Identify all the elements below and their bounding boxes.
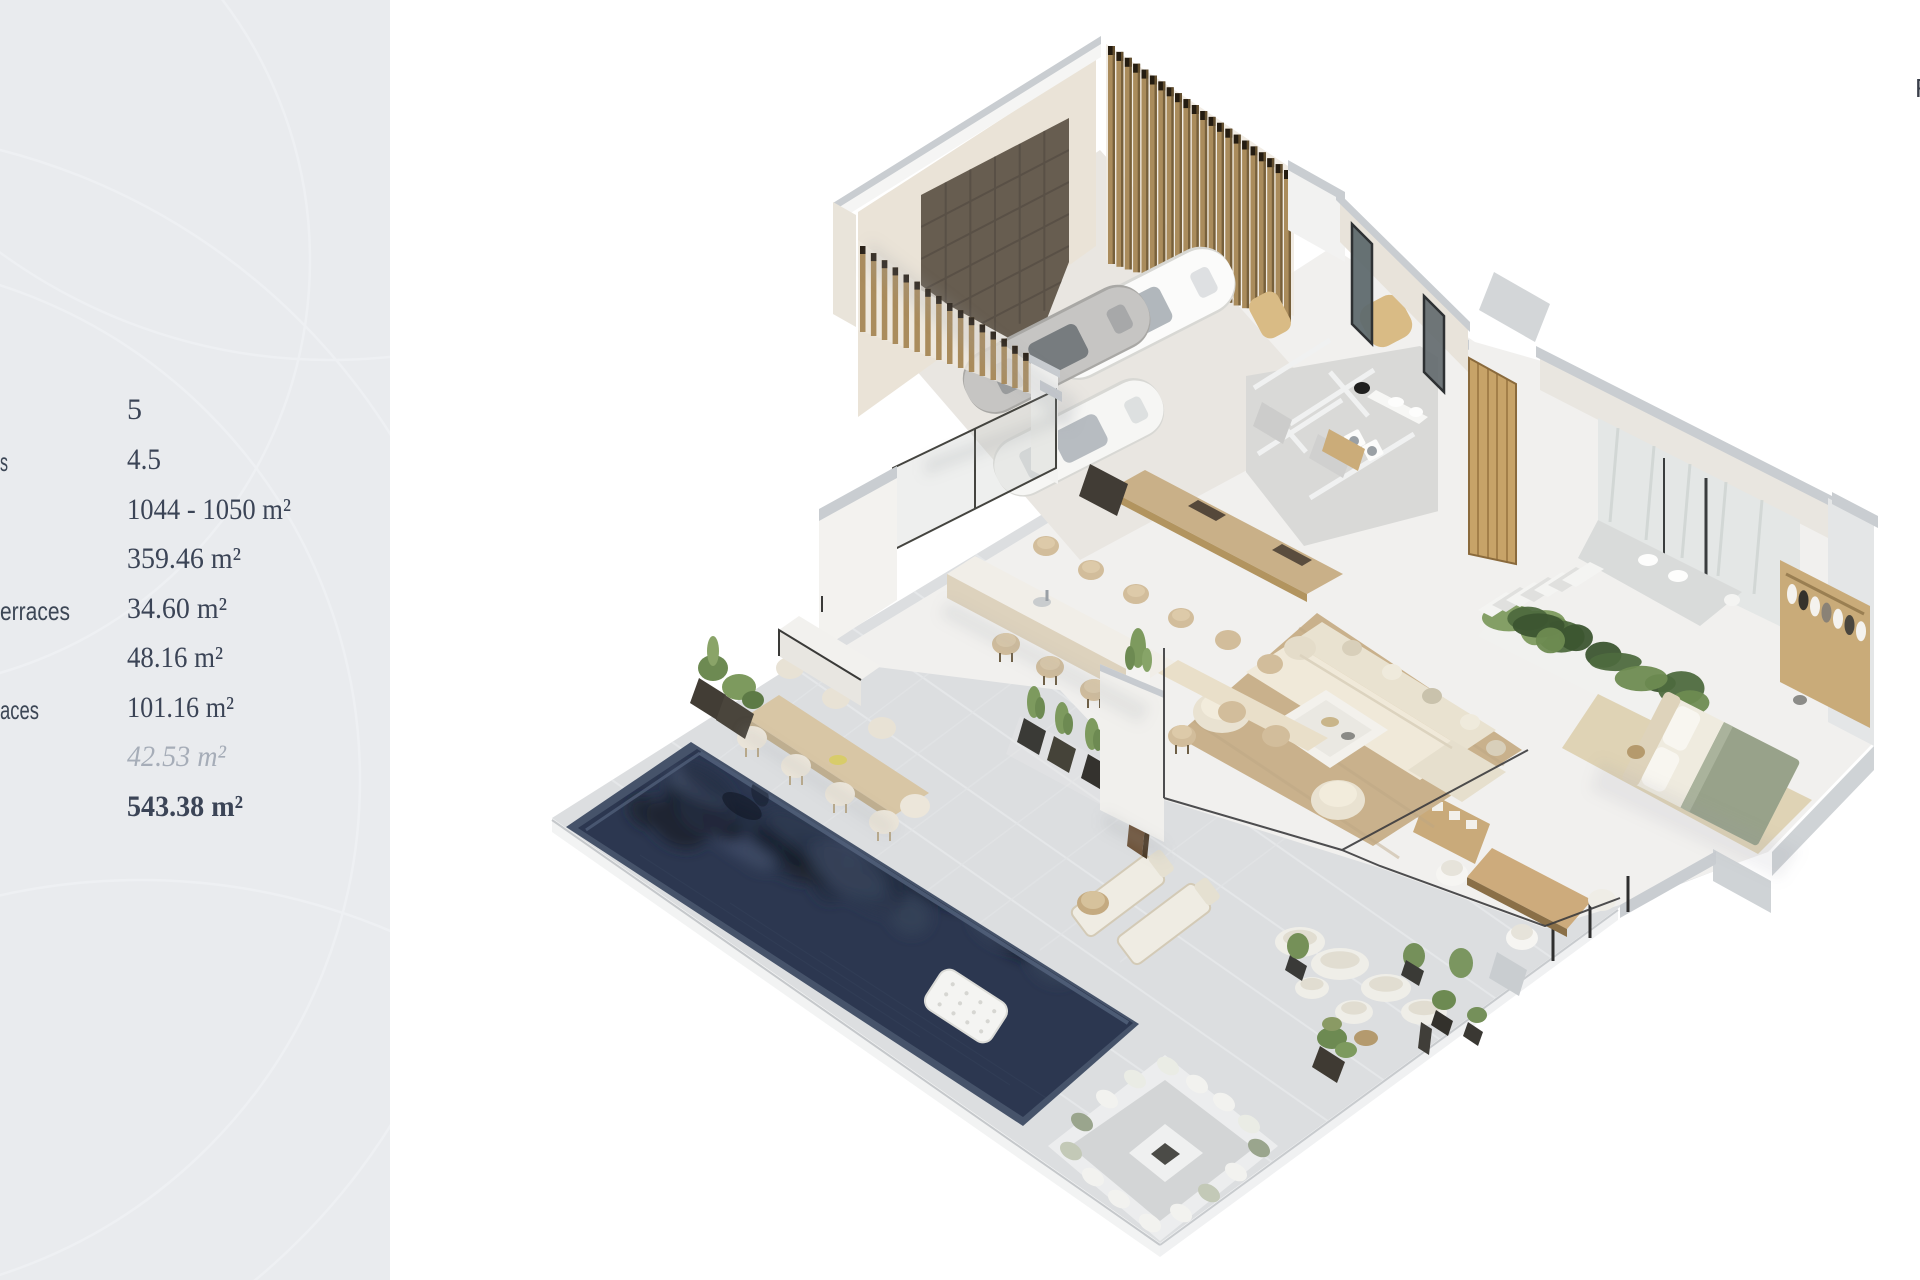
svg-text:Fi: Fi [1915, 73, 1920, 103]
svg-text:erraces: erraces [0, 596, 70, 626]
svg-text:101.16 m²: 101.16 m² [127, 691, 234, 724]
svg-text:543.38 m²: 543.38 m² [127, 790, 243, 823]
svg-text:48.16 m²: 48.16 m² [127, 641, 223, 674]
svg-text:1044 - 1050 m²: 1044 - 1050 m² [127, 493, 291, 526]
svg-text:4.5: 4.5 [127, 443, 161, 476]
svg-text:359.46 m²: 359.46 m² [127, 542, 241, 575]
svg-text:aces: aces [0, 695, 39, 725]
svg-text:5: 5 [127, 393, 142, 426]
svg-text:42.53 m²: 42.53 m² [127, 740, 227, 773]
svg-text:s: s [0, 447, 8, 477]
svg-text:34.60 m²: 34.60 m² [127, 592, 227, 625]
